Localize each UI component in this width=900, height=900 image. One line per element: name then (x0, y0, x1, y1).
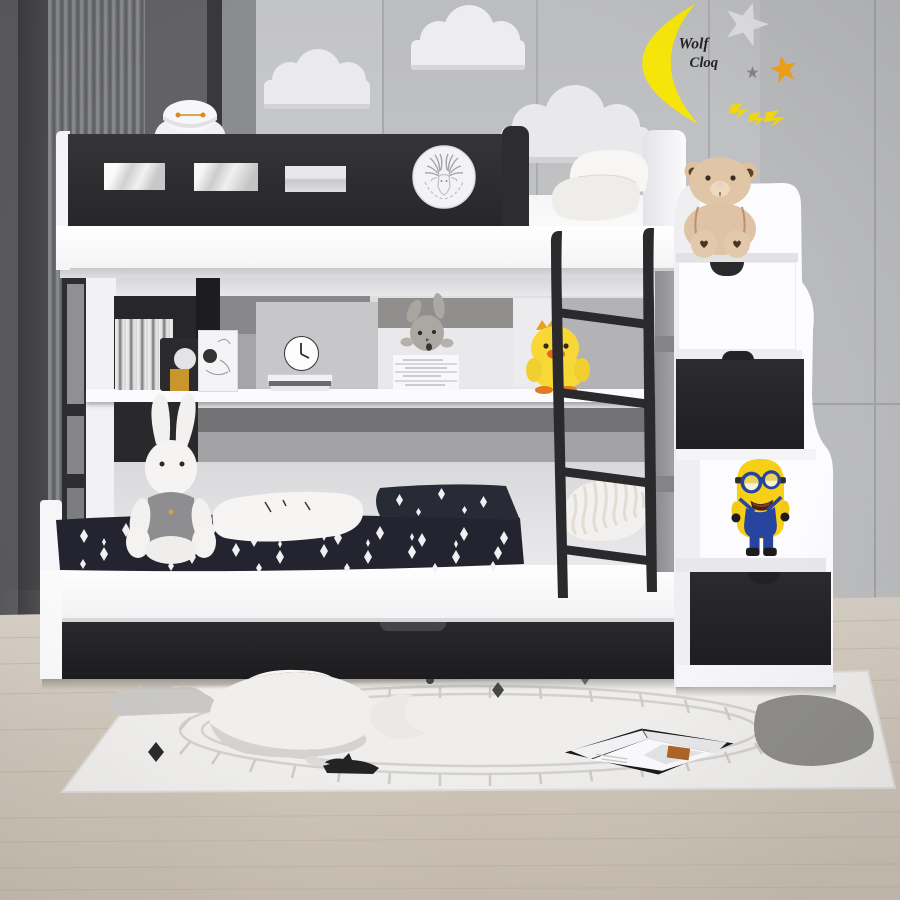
svg-text:Cloq: Cloq (690, 55, 719, 71)
svg-text:Wolf: Wolf (678, 36, 710, 53)
